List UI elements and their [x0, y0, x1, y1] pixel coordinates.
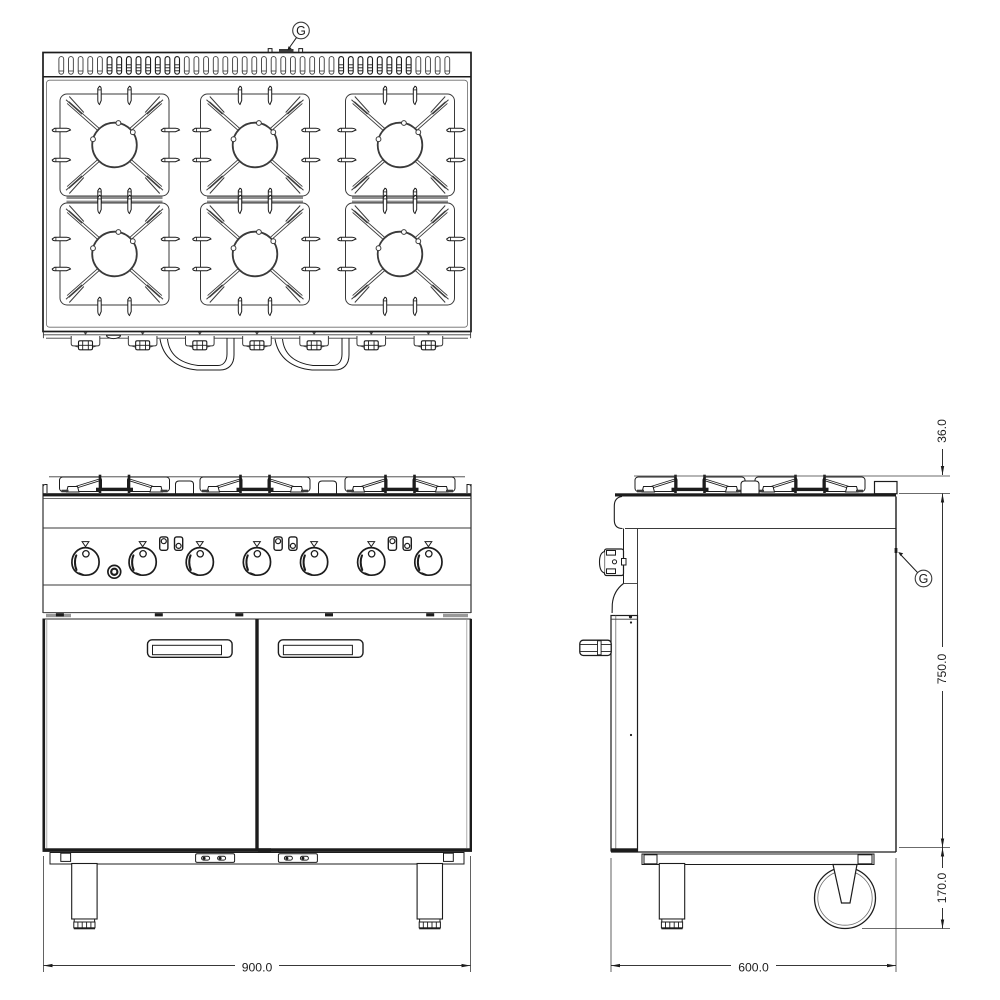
- svg-text:900.0: 900.0: [242, 961, 273, 975]
- svg-text:170.0: 170.0: [935, 873, 949, 904]
- svg-text:750.0: 750.0: [935, 654, 949, 685]
- svg-text:36.0: 36.0: [935, 419, 949, 443]
- svg-text:G: G: [919, 572, 929, 586]
- svg-text:G: G: [296, 24, 306, 38]
- svg-text:600.0: 600.0: [738, 961, 769, 975]
